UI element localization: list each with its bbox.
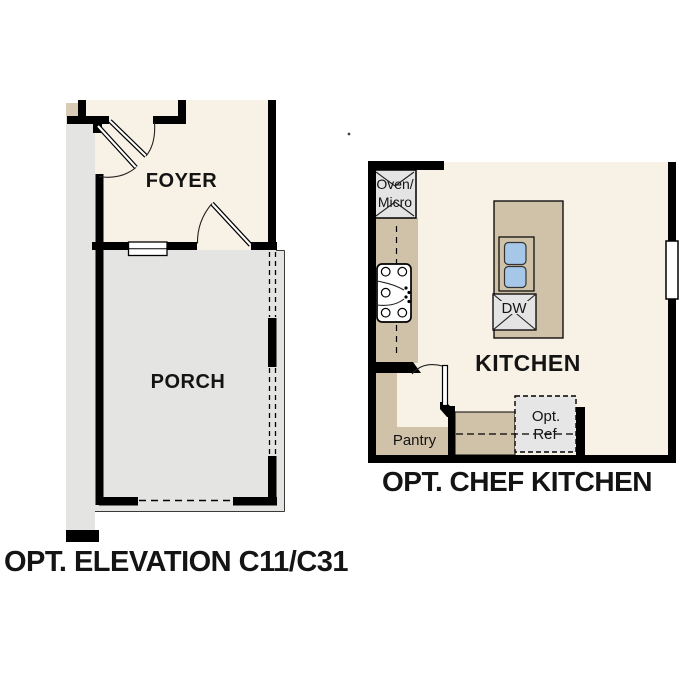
oven-micro-label-2: Micro — [378, 194, 412, 210]
burner — [381, 308, 390, 317]
elevation-plan: FOYER PORCH OPT. ELEVATION C11/C31 — [4, 100, 350, 578]
dishwasher-box: DW — [493, 294, 536, 330]
knob-dot — [407, 300, 410, 303]
wall-segment — [268, 318, 277, 367]
wall-segment — [96, 174, 104, 250]
sink-icon — [505, 243, 527, 288]
wall-segment — [96, 250, 104, 505]
kitchen-label: KITCHEN — [475, 350, 581, 376]
burner — [398, 267, 407, 276]
sink-basin — [505, 267, 527, 288]
door-leaf — [443, 366, 448, 406]
side-wall-strip — [66, 117, 95, 531]
knob-dot — [404, 295, 407, 298]
oven-micro-box: Oven/ Micro — [374, 170, 416, 218]
wall-segment — [99, 497, 138, 506]
oven-micro-label-1: Oven/ — [376, 176, 413, 192]
wall-segment — [66, 530, 99, 542]
burner — [381, 288, 390, 297]
wall-segment — [268, 100, 276, 250]
opt-ref-label-1: Opt. — [532, 408, 560, 425]
chef-kitchen-plan: Oven/ Micro — [368, 161, 678, 497]
wall-segment — [368, 161, 376, 463]
wall-segment — [368, 161, 444, 170]
knob-dot — [407, 291, 410, 294]
opt-ref-label-2: Ref — [533, 426, 557, 443]
foyer-window-icon — [129, 242, 168, 256]
knob-dot — [404, 286, 407, 289]
elevation-caption: OPT. ELEVATION C11/C31 — [4, 546, 348, 578]
wall-segment — [368, 455, 676, 463]
print-speck — [348, 133, 351, 136]
wall-segment — [178, 100, 186, 124]
wall-segment — [78, 100, 86, 118]
porch-label: PORCH — [151, 371, 226, 393]
foyer-label: FOYER — [146, 170, 217, 192]
dishwasher-label: DW — [502, 300, 528, 317]
wall-segment — [668, 162, 676, 463]
wall-stub — [576, 407, 585, 463]
floorplan-canvas: FOYER PORCH OPT. ELEVATION C11/C31 Oven/… — [0, 0, 687, 687]
wall-segment — [268, 456, 277, 504]
floorplan-svg: FOYER PORCH OPT. ELEVATION C11/C31 Oven/… — [0, 0, 687, 687]
pantry-label: Pantry — [393, 432, 437, 449]
burner — [398, 308, 407, 317]
kitchen-window-icon — [666, 241, 678, 299]
wall-segment — [67, 116, 109, 124]
sink-basin — [505, 243, 527, 265]
cooktop-icon — [377, 264, 411, 322]
beige-corner-patch — [66, 103, 78, 117]
burner — [381, 267, 390, 276]
chef-kitchen-caption: OPT. CHEF KITCHEN — [382, 466, 652, 497]
pantry-wall-stub — [368, 362, 413, 373]
